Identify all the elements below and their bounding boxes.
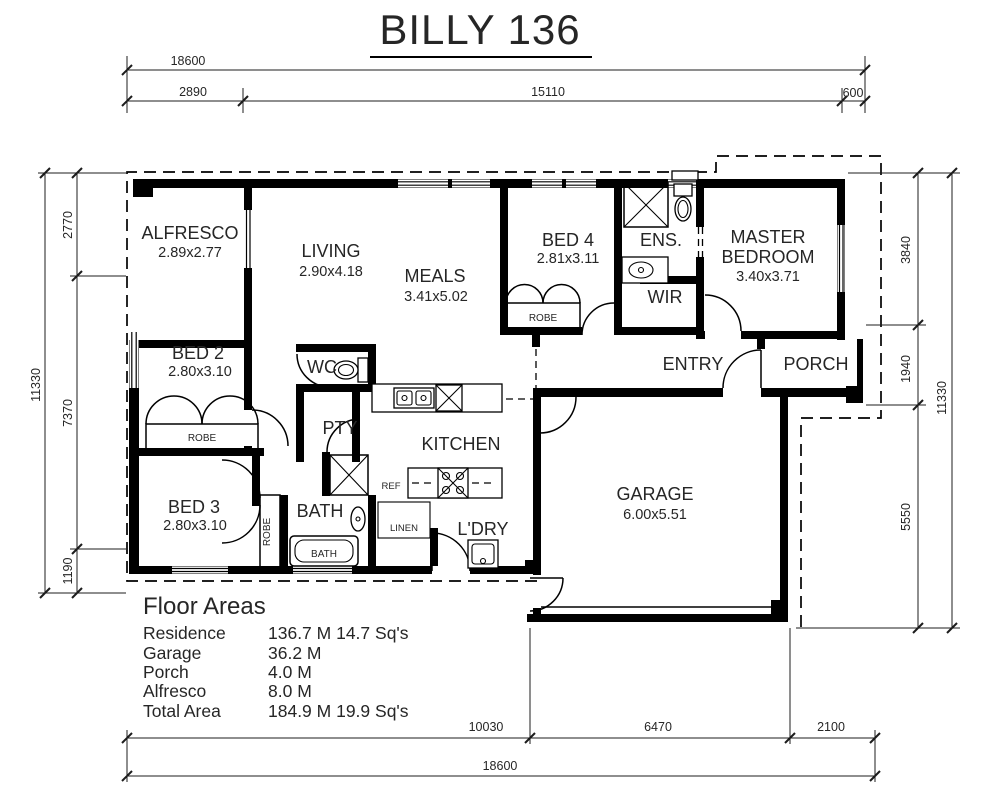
window-bath: [293, 567, 352, 574]
window-bed3: [172, 567, 228, 574]
size-living: 2.90x4.18: [299, 264, 363, 280]
fa-label-alfresco: Alfresco: [143, 681, 206, 701]
fa-value-residence: 136.7 M 14.7 Sq's: [268, 623, 409, 643]
bed3-door-arc: [222, 505, 260, 543]
dim-bottom-seg2: 6470: [644, 720, 672, 734]
label-bath: BATH: [297, 501, 344, 521]
dim-bottom-seg3: 2100: [817, 720, 845, 734]
front-door-arc: [723, 350, 761, 388]
label-bed4: BED 4: [542, 230, 594, 250]
floor-plan-drawing: BILLY 136: [0, 0, 991, 801]
dim-bottom-overall: 18600: [483, 759, 518, 773]
ens-highlight-window: [672, 171, 698, 180]
label-robe-bed4: ROBE: [529, 313, 558, 324]
fa-label-porch: Porch: [143, 662, 189, 682]
label-master-2: BEDROOM: [721, 247, 814, 267]
dim-top-seg3: 600: [843, 86, 864, 100]
bath-basin: [351, 507, 365, 531]
window-master: [838, 225, 845, 292]
size-bed3: 2.80x3.10: [163, 518, 227, 534]
dim-left-seg3: 1190: [61, 558, 75, 585]
size-bed4: 2.81x3.11: [537, 251, 600, 267]
label-robe-bed2: ROBE: [188, 433, 217, 444]
garage-rear-door-arc: [530, 578, 563, 611]
fa-value-total: 184.9 M 19.9 Sq's: [268, 701, 409, 721]
label-pty: PTY: [322, 418, 357, 438]
dim-top-overall: 18600: [171, 54, 206, 68]
kitchen-back-bench: [408, 468, 502, 498]
size-master: 3.40x3.71: [736, 269, 800, 285]
size-garage: 6.00x5.51: [623, 507, 687, 523]
floor-areas: Floor Areas Residence 136.7 M 14.7 Sq's …: [143, 593, 409, 721]
dim-right-seg1: 3840: [899, 236, 913, 264]
dishwasher: [436, 385, 462, 411]
fa-label-garage: Garage: [143, 643, 201, 663]
fa-value-porch: 4.0 M: [268, 662, 312, 682]
label-bed2: BED 2: [172, 343, 224, 363]
fa-label-total: Total Area: [143, 701, 221, 721]
label-ref: REF: [382, 481, 401, 492]
label-bed3: BED 3: [168, 497, 220, 517]
size-alfresco: 2.89x2.77: [158, 245, 222, 261]
window-bed4-2: [566, 180, 596, 188]
ens-toilet: [674, 184, 692, 221]
label-bathtub: BATH: [311, 549, 337, 560]
window-living-2: [452, 180, 490, 188]
dim-right-overall: 11330: [935, 381, 949, 415]
label-entry: ENTRY: [663, 354, 724, 374]
ens-shower: [624, 183, 668, 227]
laundry-tub: [468, 540, 498, 568]
label-garage: GARAGE: [616, 484, 693, 504]
label-ens: ENS.: [640, 230, 682, 250]
fa-value-garage: 36.2 M: [268, 643, 322, 663]
dim-right-seg2: 1940: [899, 355, 913, 383]
window-alfresco-divider: [245, 210, 252, 268]
dim-left-seg2: 7370: [61, 399, 75, 427]
bed4-door-arc: [582, 303, 614, 335]
label-porch: PORCH: [783, 354, 848, 374]
bath-shower: [330, 455, 368, 495]
label-kitchen: KITCHEN: [421, 434, 500, 454]
dim-left-overall: 11330: [29, 368, 43, 402]
ens-basin: [622, 257, 668, 283]
bed4-robe: [506, 285, 580, 332]
window-living-1: [398, 180, 448, 188]
label-ldry: L'DRY: [457, 519, 508, 539]
floor-areas-heading: Floor Areas: [143, 593, 266, 620]
plan-title: BILLY 136: [379, 6, 580, 53]
window-bed4-1: [532, 180, 562, 188]
label-robe-bed3: ROBE: [262, 518, 273, 547]
fa-value-alfresco: 8.0 M: [268, 681, 312, 701]
kitchen-island-bench: [372, 384, 502, 412]
floor-plan-page: BILLY 136: [0, 0, 991, 801]
fa-label-residence: Residence: [143, 623, 226, 643]
cooktop: [438, 468, 468, 498]
dim-top-seg1: 2890: [179, 85, 207, 99]
label-linen: LINEN: [390, 523, 418, 534]
label-living: LIVING: [301, 241, 360, 261]
size-meals: 3.41x5.02: [404, 289, 468, 305]
size-bed2: 2.80x3.10: [168, 364, 232, 380]
master-door-arc: [705, 295, 741, 331]
label-wir: WIR: [648, 287, 683, 307]
dim-right-seg3: 5550: [899, 503, 913, 531]
label-master-1: MASTER: [730, 227, 805, 247]
dim-top-seg2: 15110: [531, 85, 565, 99]
wc-toilet: [334, 358, 368, 382]
dim-bottom-seg1: 10030: [469, 720, 504, 734]
dim-left-seg1: 2770: [61, 211, 75, 239]
label-wc: WC: [307, 357, 337, 377]
label-alfresco: ALFRESCO: [141, 223, 238, 243]
garage-internal-door-arc: [540, 397, 576, 433]
label-meals: MEALS: [404, 266, 465, 286]
window-bed2: [130, 332, 139, 388]
